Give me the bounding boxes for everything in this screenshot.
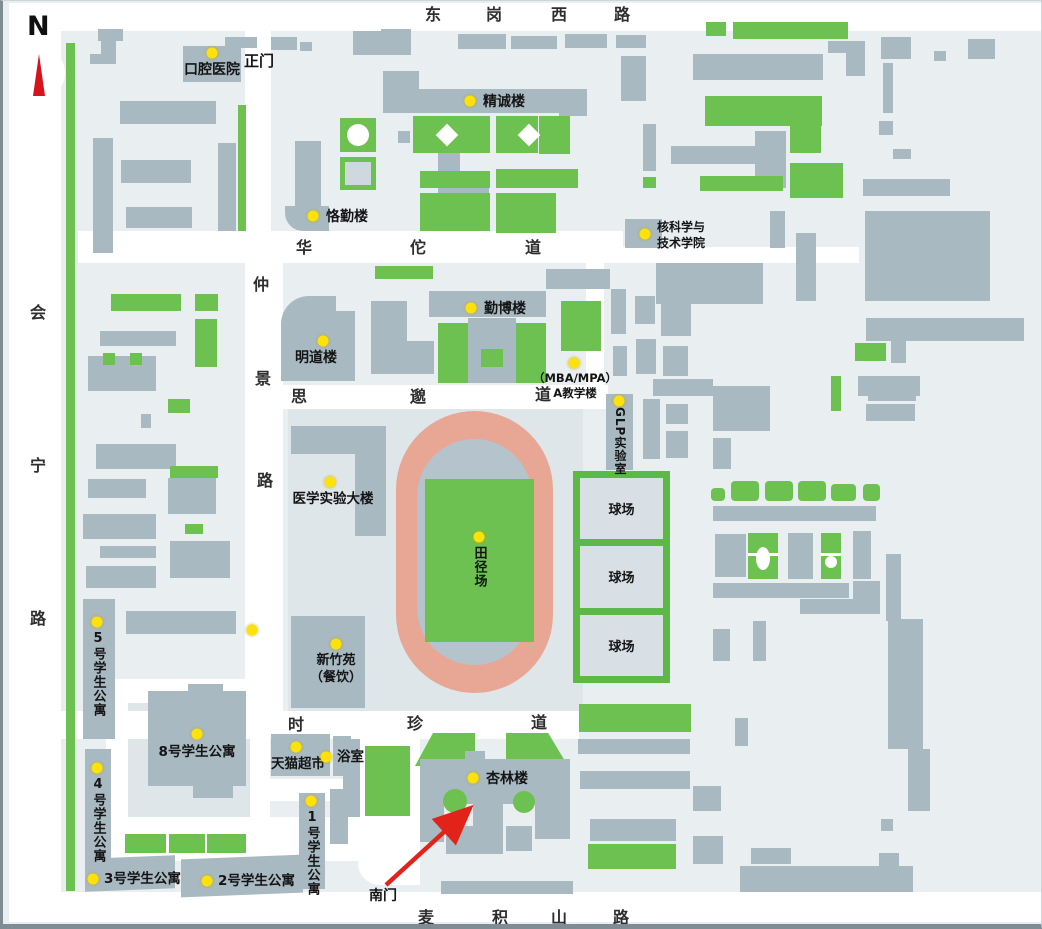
- road-name-char: 仲: [253, 277, 269, 293]
- green-area: [420, 193, 490, 231]
- dorm-3-marker[interactable]: [88, 874, 99, 885]
- green-area: [168, 399, 190, 413]
- green-area: [169, 834, 205, 853]
- building-block: [578, 739, 690, 754]
- building-block: [295, 141, 321, 209]
- building-block: [126, 611, 236, 634]
- road-segment: [9, 892, 1041, 922]
- road-name-char: 珍: [407, 716, 423, 732]
- building-block: [881, 37, 911, 59]
- building-block: [611, 289, 626, 334]
- building-block: [879, 853, 899, 868]
- building-block: [713, 629, 730, 661]
- road-name-char: 路: [257, 473, 273, 489]
- building-block: [788, 533, 813, 579]
- building-block: [323, 311, 355, 381]
- building-block: [86, 566, 156, 588]
- road-segment: [78, 231, 623, 263]
- green-area: [561, 301, 601, 351]
- courtyard-cutout: [825, 556, 837, 568]
- building-block: [621, 56, 646, 101]
- road-name-char: 邈: [410, 389, 426, 405]
- green-area: [170, 466, 218, 478]
- green-area: [365, 746, 410, 816]
- dorm-2-marker[interactable]: [202, 876, 213, 887]
- road-name-char: 岗: [486, 7, 502, 23]
- green-area: [438, 323, 468, 383]
- road-name-char: 道: [525, 240, 541, 256]
- road-name-char: 会: [30, 305, 46, 321]
- building-block: [653, 379, 713, 396]
- road-name-char: 宁: [30, 458, 46, 474]
- bathhouse-label: 浴室: [337, 749, 364, 767]
- road-name-char: 路: [30, 611, 46, 627]
- ball-court-cell: 球场: [580, 478, 663, 539]
- green-area: [765, 481, 793, 501]
- road-name-char: 麦: [418, 910, 434, 926]
- ball-courts: 球场球场球场: [573, 471, 670, 683]
- building-block: [535, 804, 570, 839]
- building-block: [170, 541, 230, 578]
- xinglin-building-marker[interactable]: [468, 773, 479, 784]
- qinbo-building-label: 勤博楼: [484, 300, 526, 318]
- green-area: [420, 171, 490, 188]
- tianmao-market-label: 天猫超市: [271, 756, 325, 774]
- qinbo-building-marker[interactable]: [466, 303, 477, 314]
- xinzhu-dining-marker[interactable]: [331, 639, 342, 650]
- building-block: [713, 506, 876, 521]
- athletic-field-label: 田径场: [473, 546, 486, 588]
- main-gate-label: 正门: [244, 52, 274, 72]
- green-area: [195, 319, 217, 367]
- building-block: [846, 53, 865, 76]
- building-block: [141, 414, 151, 428]
- building-block: [643, 124, 656, 171]
- building-block: [458, 34, 506, 49]
- medical-lab-building-marker[interactable]: [325, 477, 336, 488]
- road-segment: [9, 3, 61, 894]
- building-block: [643, 399, 660, 459]
- building-block: [865, 211, 990, 301]
- building-block: [121, 160, 191, 183]
- building-block: [126, 207, 192, 228]
- building-block: [853, 581, 880, 614]
- glp-lab-marker[interactable]: [614, 396, 625, 407]
- road-name-char: 积: [492, 910, 508, 926]
- dorm-4-marker[interactable]: [92, 763, 103, 774]
- building-block: [663, 346, 688, 376]
- building-block: [753, 621, 766, 661]
- building-block: [300, 42, 312, 51]
- green-area: [125, 834, 166, 853]
- building-block: [546, 269, 610, 289]
- green-area: [855, 343, 886, 361]
- green-area: [711, 488, 725, 501]
- road-name-char: 道: [531, 715, 547, 731]
- building-block: [271, 37, 297, 50]
- building-block: [473, 804, 503, 854]
- courtyard-cutout: [748, 553, 778, 556]
- road-name-char: 西: [551, 7, 567, 23]
- dorm-5-marker[interactable]: [92, 617, 103, 628]
- kouqiang-hospital-marker[interactable]: [207, 48, 218, 59]
- building-block: [580, 771, 690, 789]
- green-area: [705, 96, 822, 126]
- green-framed-plaza: [340, 157, 376, 190]
- building-block: [188, 684, 223, 694]
- building-block: [616, 35, 646, 48]
- road-name-char: 东: [425, 7, 441, 23]
- bathhouse-marker[interactable]: [321, 752, 332, 763]
- building-block: [866, 404, 915, 421]
- green-area: [496, 193, 556, 233]
- mingdao-building-marker[interactable]: [318, 336, 329, 347]
- building-block: [888, 619, 923, 749]
- building-block: [96, 444, 176, 469]
- building-block: [740, 866, 913, 892]
- green-area: [790, 163, 843, 198]
- building-block: [713, 438, 731, 469]
- green-area: [798, 481, 826, 501]
- road-name-char: 华: [296, 240, 312, 256]
- building-block: [713, 386, 770, 431]
- courtyard-cutout: [821, 553, 841, 556]
- building-block: [506, 826, 532, 851]
- building-block: [218, 143, 236, 231]
- building-block: [88, 356, 156, 391]
- south-gate-label: 南门: [369, 887, 397, 905]
- xinglin-building-label: 杏林楼: [486, 770, 528, 788]
- building-block: [800, 599, 856, 614]
- green-area: [579, 704, 691, 732]
- building-block: [881, 819, 893, 831]
- keqin-building-label: 恪勤楼: [326, 208, 368, 226]
- building-block: [661, 291, 691, 336]
- building-block: [635, 296, 655, 324]
- courtyard-cutout: [756, 547, 770, 570]
- green-area: [375, 266, 433, 279]
- road-name-char: 路: [614, 7, 630, 23]
- green-area: [496, 169, 578, 188]
- ball-court-cell: 球场: [580, 546, 663, 607]
- building-block: [770, 211, 785, 248]
- xinzhu-dining-label: 新竹苑（餐饮）: [310, 653, 362, 687]
- building-block: [671, 146, 755, 164]
- building-block: [666, 431, 688, 458]
- building-block: [968, 39, 995, 59]
- road-name-char: 时: [288, 717, 304, 733]
- dorm-2-label: 2号学生公寓: [218, 873, 295, 891]
- building-block: [193, 786, 233, 798]
- green-area: [831, 376, 841, 411]
- building-block: [886, 554, 901, 621]
- building-block: [879, 121, 893, 135]
- building-block: [590, 819, 676, 841]
- green-area: [443, 789, 467, 813]
- green-area: [863, 484, 880, 501]
- green-area: [130, 353, 142, 365]
- building-block: [446, 826, 474, 854]
- building-block: [666, 404, 688, 424]
- building-block: [83, 514, 156, 539]
- dorm-3-label: 3号学生公寓: [104, 871, 181, 889]
- mingdao-building-label: 明道楼: [295, 349, 337, 367]
- road-name-char: 山: [551, 910, 567, 926]
- road-name-char: 路: [613, 910, 629, 926]
- green-area: [588, 844, 676, 869]
- green-area: [103, 353, 115, 365]
- green-area: [831, 484, 856, 501]
- athletic-field-marker[interactable]: [474, 532, 485, 543]
- dorm-4-label: 4号学生公寓: [92, 777, 105, 863]
- building-block: [120, 101, 216, 124]
- building-block: [381, 29, 411, 41]
- building-block: [715, 534, 746, 577]
- tianmao-market-marker[interactable]: [291, 742, 302, 753]
- road-marker-marker[interactable]: [247, 625, 258, 636]
- building-block: [713, 583, 849, 598]
- jingcheng-building-marker[interactable]: [465, 96, 476, 107]
- green-area: [700, 176, 783, 191]
- building-block: [420, 804, 444, 842]
- building-block: [441, 881, 573, 894]
- kouqiang-hospital-label: 口腔医院: [184, 61, 240, 79]
- mba-teaching-building-label: （MBA/MPA）A教学楼: [533, 371, 617, 401]
- road-name-char: 思: [291, 389, 307, 405]
- compass-north-label: N: [27, 11, 50, 42]
- dorm-1-marker[interactable]: [306, 796, 317, 807]
- building-block: [100, 331, 176, 346]
- dorm-8-marker[interactable]: [192, 729, 203, 740]
- building-block: [559, 89, 587, 116]
- green-area: [513, 791, 535, 813]
- north-needle-icon: [33, 54, 45, 96]
- green-area: [195, 294, 218, 311]
- building-block: [330, 789, 348, 844]
- green-area: [238, 105, 246, 231]
- building-block: [883, 63, 893, 113]
- green-area: [733, 22, 848, 39]
- building-block: [168, 478, 216, 514]
- glp-lab-label: GLP实验室: [614, 407, 626, 475]
- ball-court-cell: 球场: [580, 615, 663, 676]
- green-area: [790, 126, 821, 153]
- green-area: [706, 22, 726, 36]
- medical-lab-building-label: 医学实验大楼: [293, 491, 374, 509]
- green-area: [731, 481, 759, 501]
- road-segment: [9, 3, 1041, 31]
- building-block: [100, 546, 156, 558]
- building-block: [796, 233, 816, 301]
- building-block: [693, 786, 721, 811]
- courtyard-cutout: [347, 124, 369, 146]
- building-block: [863, 179, 950, 196]
- building-block: [636, 339, 656, 374]
- building-block: [868, 379, 916, 401]
- building-block: [291, 426, 386, 454]
- building-block: [88, 479, 146, 498]
- building-block: [735, 718, 748, 746]
- building-block: [866, 318, 1024, 341]
- mba-teaching-building-marker[interactable]: [569, 358, 580, 369]
- keqin-building-marker[interactable]: [308, 211, 319, 222]
- building-block: [908, 749, 930, 811]
- building-block: [406, 341, 434, 374]
- building-block: [853, 531, 871, 579]
- building-block: [693, 836, 723, 864]
- building-block: [90, 54, 101, 64]
- building-block: [371, 301, 407, 374]
- building-block: [828, 41, 865, 53]
- nuclear-science-school-marker[interactable]: [640, 229, 651, 240]
- green-area: [481, 349, 503, 367]
- building-block: [93, 138, 113, 253]
- building-block: [465, 751, 485, 761]
- building-block: [98, 29, 123, 41]
- green-area: [185, 524, 203, 534]
- nuclear-science-school-label: 核科学与技术学院: [657, 220, 705, 251]
- dorm-8-label: 8号学生公寓: [159, 744, 236, 762]
- green-area: [207, 834, 246, 853]
- building-block: [511, 36, 557, 49]
- road-name-char: 景: [255, 371, 271, 387]
- dorm-1-label: 1号学生公寓: [306, 810, 319, 896]
- green-area: [643, 177, 656, 188]
- green-area: [66, 43, 75, 891]
- building-block: [934, 51, 946, 61]
- road-name-char: 佗: [410, 240, 426, 256]
- building-block: [398, 131, 410, 143]
- jingcheng-building-label: 精诚楼: [483, 93, 525, 111]
- green-area: [539, 116, 570, 154]
- building-block: [751, 848, 791, 864]
- building-block: [893, 149, 911, 159]
- building-block: [101, 41, 116, 64]
- building-block: [565, 34, 607, 48]
- green-area: [111, 294, 181, 311]
- building-block: [285, 206, 329, 231]
- dorm-5-label: 5号学生公寓: [92, 631, 105, 717]
- building-block: [693, 54, 823, 80]
- building-block: [891, 341, 906, 363]
- campus-map: N 球场球场球场 东岗西路会宁路麦积山路华佗道仲景路思邈道时珍道口腔医院正门精诚…: [0, 0, 1042, 929]
